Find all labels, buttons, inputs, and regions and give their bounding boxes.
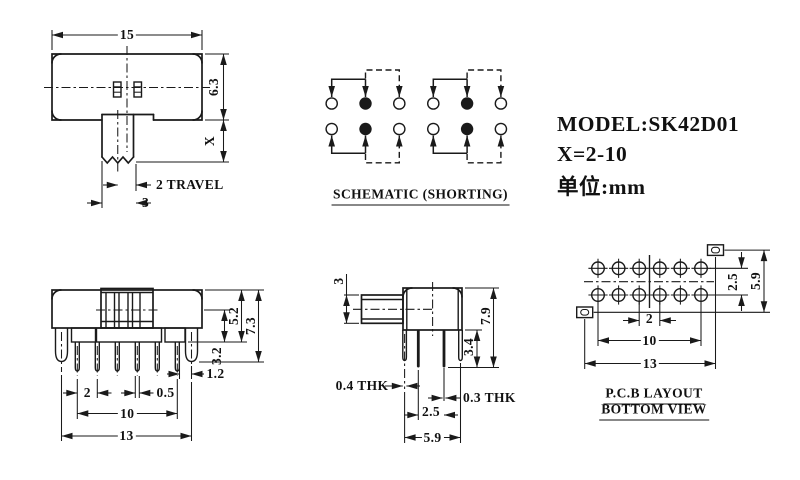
side-view-row-spacing-dim: 2.5 [422, 404, 440, 420]
pcb-pad-pitch-dim: 2 [646, 311, 653, 327]
front-view-overall-height-dim: 7.3 [243, 317, 259, 335]
front-view-body-height-dim: 5.2 [226, 307, 242, 325]
side-view-pin-thickness-dim: 0.3 THK [463, 390, 516, 406]
front-view-pin-span-dim: 10 [118, 406, 136, 422]
side-view-stem-height-dim: 3 [331, 277, 347, 284]
side-view-pin-length-dim: 3.4 [461, 338, 477, 356]
side-view-overall-height-dim: 7.9 [478, 307, 494, 325]
engineering-drawing-sheet: 15 6.3 X 2 TRAVEL 3 SCHEMATIC (SHORTING)… [0, 0, 800, 480]
pcb-slot-span-dim: 13 [641, 356, 659, 372]
front-view-lug-span-dim: 13 [117, 428, 135, 444]
front-view-pin-pitch-dim: 2 [84, 385, 91, 401]
pcb-layout-lines [577, 245, 770, 369]
pcb-caption-line2: BOTTOM VIEW [599, 401, 709, 420]
schematic-lines [326, 70, 506, 163]
front-view-pin-length-dim: 3.2 [209, 347, 225, 365]
schematic-caption: SCHEMATIC (SHORTING) [331, 187, 510, 206]
top-view-stem-width-dim: 3 [142, 195, 149, 211]
top-view-travel-dim: 2 TRAVEL [156, 177, 224, 193]
front-view-lug-offset-dim: 1.2 [207, 366, 225, 382]
side-view-lug-thickness-dim: 0.4 THK [336, 378, 389, 394]
pcb-slot-vertical-dim: 5.9 [748, 272, 764, 290]
pcb-pad-span-dim: 10 [640, 333, 658, 349]
front-view-pin-width-dim: 0.5 [157, 385, 175, 401]
top-view-width-dim: 15 [118, 27, 136, 43]
model-number: MODEL:SK42D01 [557, 112, 739, 137]
unit-note: 单位:mm [557, 170, 645, 201]
side-view-leg-spacing-dim: 5.9 [421, 430, 443, 446]
pcb-row-spacing-dim: 2.5 [725, 273, 741, 291]
top-view-x-dim: X [202, 136, 218, 146]
x-range-note: X=2-10 [557, 142, 627, 167]
top-view-height-dim: 6.3 [206, 78, 222, 96]
